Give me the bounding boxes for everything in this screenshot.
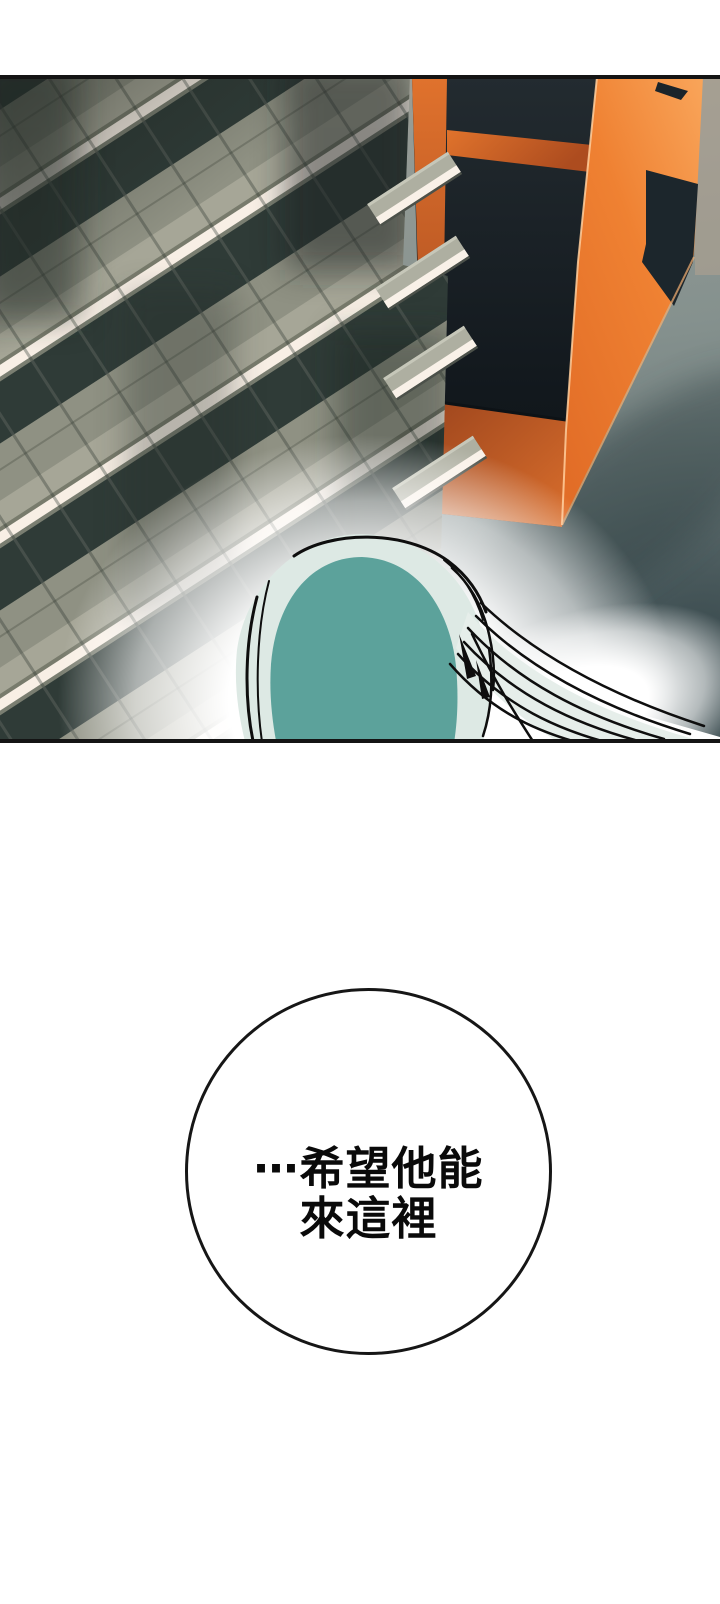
comic-panel-artwork <box>0 0 720 1604</box>
speech-bubble: ⋯希望他能 來這裡 <box>185 988 552 1355</box>
panel-bottom-border <box>0 739 720 743</box>
comic-page: ⋯希望他能 來這裡 <box>0 0 720 1604</box>
speech-bubble-text: ⋯希望他能 來這裡 <box>253 1144 483 1244</box>
speech-line-1: ⋯希望他能 <box>253 1144 483 1194</box>
hair-teal <box>270 557 457 800</box>
panel-top-border <box>0 75 720 79</box>
speech-line-2: 來這裡 <box>253 1194 483 1244</box>
